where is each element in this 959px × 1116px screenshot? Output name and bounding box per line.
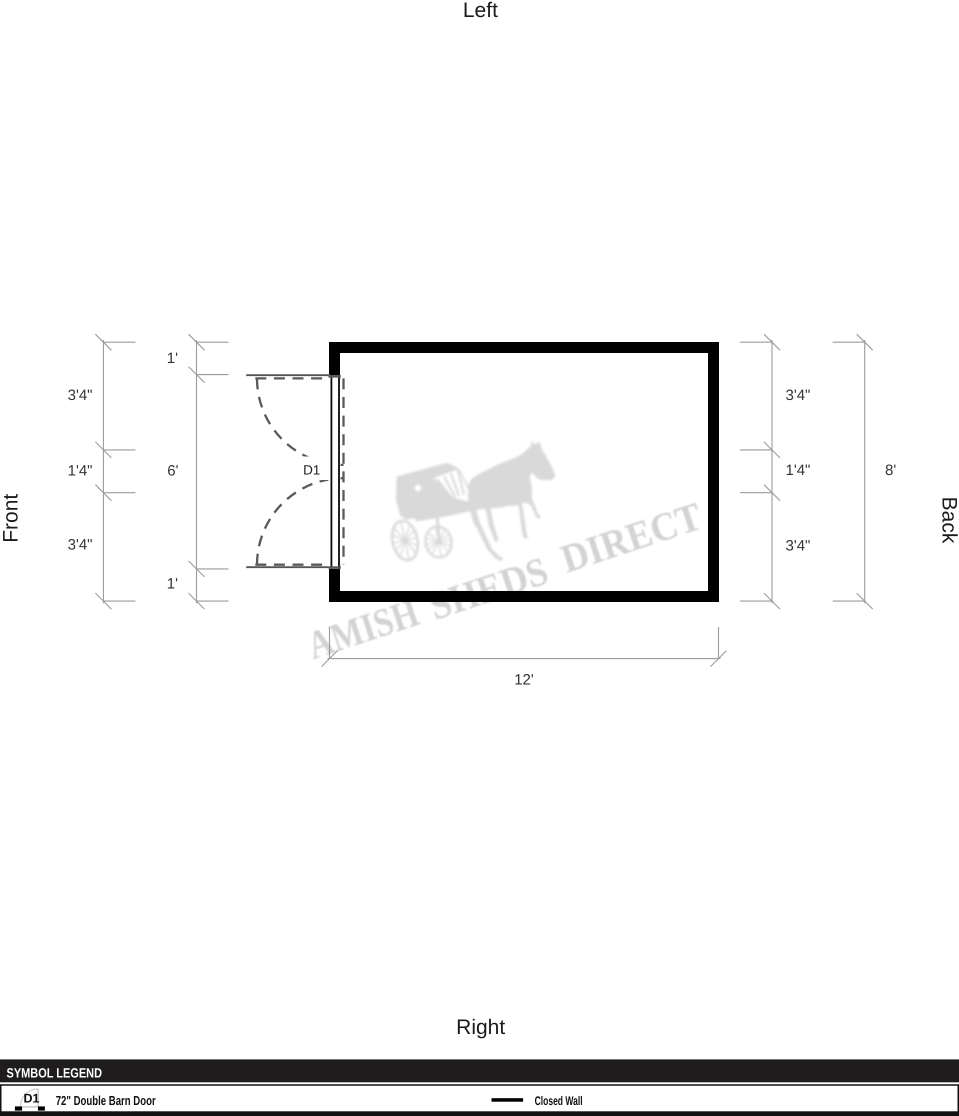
svg-text:DIRECT: DIRECT [555,493,707,581]
svg-text:3'4": 3'4" [68,387,93,404]
svg-text:Closed Wall: Closed Wall [535,1094,583,1108]
svg-text:1'4": 1'4" [68,463,93,480]
svg-text:Front: Front [0,494,23,543]
svg-text:3'4": 3'4" [786,537,811,554]
svg-text:3'4": 3'4" [68,536,93,553]
svg-text:D1: D1 [303,462,320,477]
svg-text:8': 8' [885,462,896,479]
svg-text:Left: Left [463,0,498,22]
svg-text:1': 1' [167,350,178,367]
svg-text:3'4": 3'4" [786,387,811,404]
svg-text:SYMBOL LEGEND: SYMBOL LEGEND [7,1066,103,1081]
svg-text:Back: Back [938,497,959,544]
svg-text:72" Double Barn Door: 72" Double Barn Door [56,1093,156,1108]
svg-text:Right: Right [456,1016,505,1039]
svg-text:D1: D1 [24,1091,40,1105]
svg-text:1'4": 1'4" [786,462,811,479]
svg-text:12': 12' [514,671,534,688]
svg-text:6': 6' [167,463,178,480]
svg-text:SHEDS: SHEDS [424,548,554,629]
svg-text:1': 1' [167,576,178,593]
